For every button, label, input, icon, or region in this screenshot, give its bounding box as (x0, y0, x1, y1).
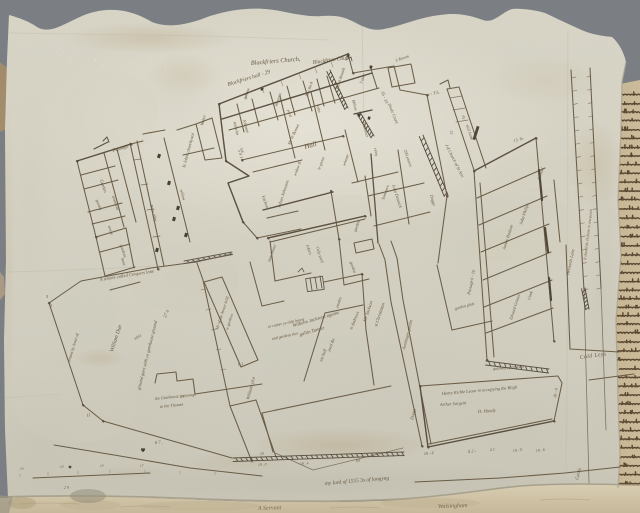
svg-text:2 9: 2 9 (64, 485, 69, 490)
svg-text:19: 19 (20, 467, 24, 471)
svg-text:19 . 4: 19 . 4 (300, 462, 309, 466)
svg-text:19 . 0: 19 . 0 (258, 463, 267, 467)
svg-text:10: 10 (60, 465, 64, 469)
svg-text:2 1: 2 1 (490, 446, 495, 451)
svg-text:17: 17 (140, 464, 144, 468)
svg-text:2 1: 2 1 (180, 393, 185, 398)
svg-text:5 2 -: 5 2 - (468, 448, 477, 454)
svg-text:6 7 .: 6 7 . (155, 439, 163, 445)
svg-text:20: 20 (260, 452, 264, 456)
svg-text:16 - 4: 16 - 4 (424, 450, 434, 456)
svg-text:1 3: 1 3 (237, 361, 243, 367)
svg-text:69: 69 (356, 458, 360, 463)
svg-text:Walsingham: Walsingham (438, 503, 468, 510)
svg-text:19: 19 (100, 464, 104, 468)
svg-text:A Servant: A Servant (257, 505, 282, 512)
